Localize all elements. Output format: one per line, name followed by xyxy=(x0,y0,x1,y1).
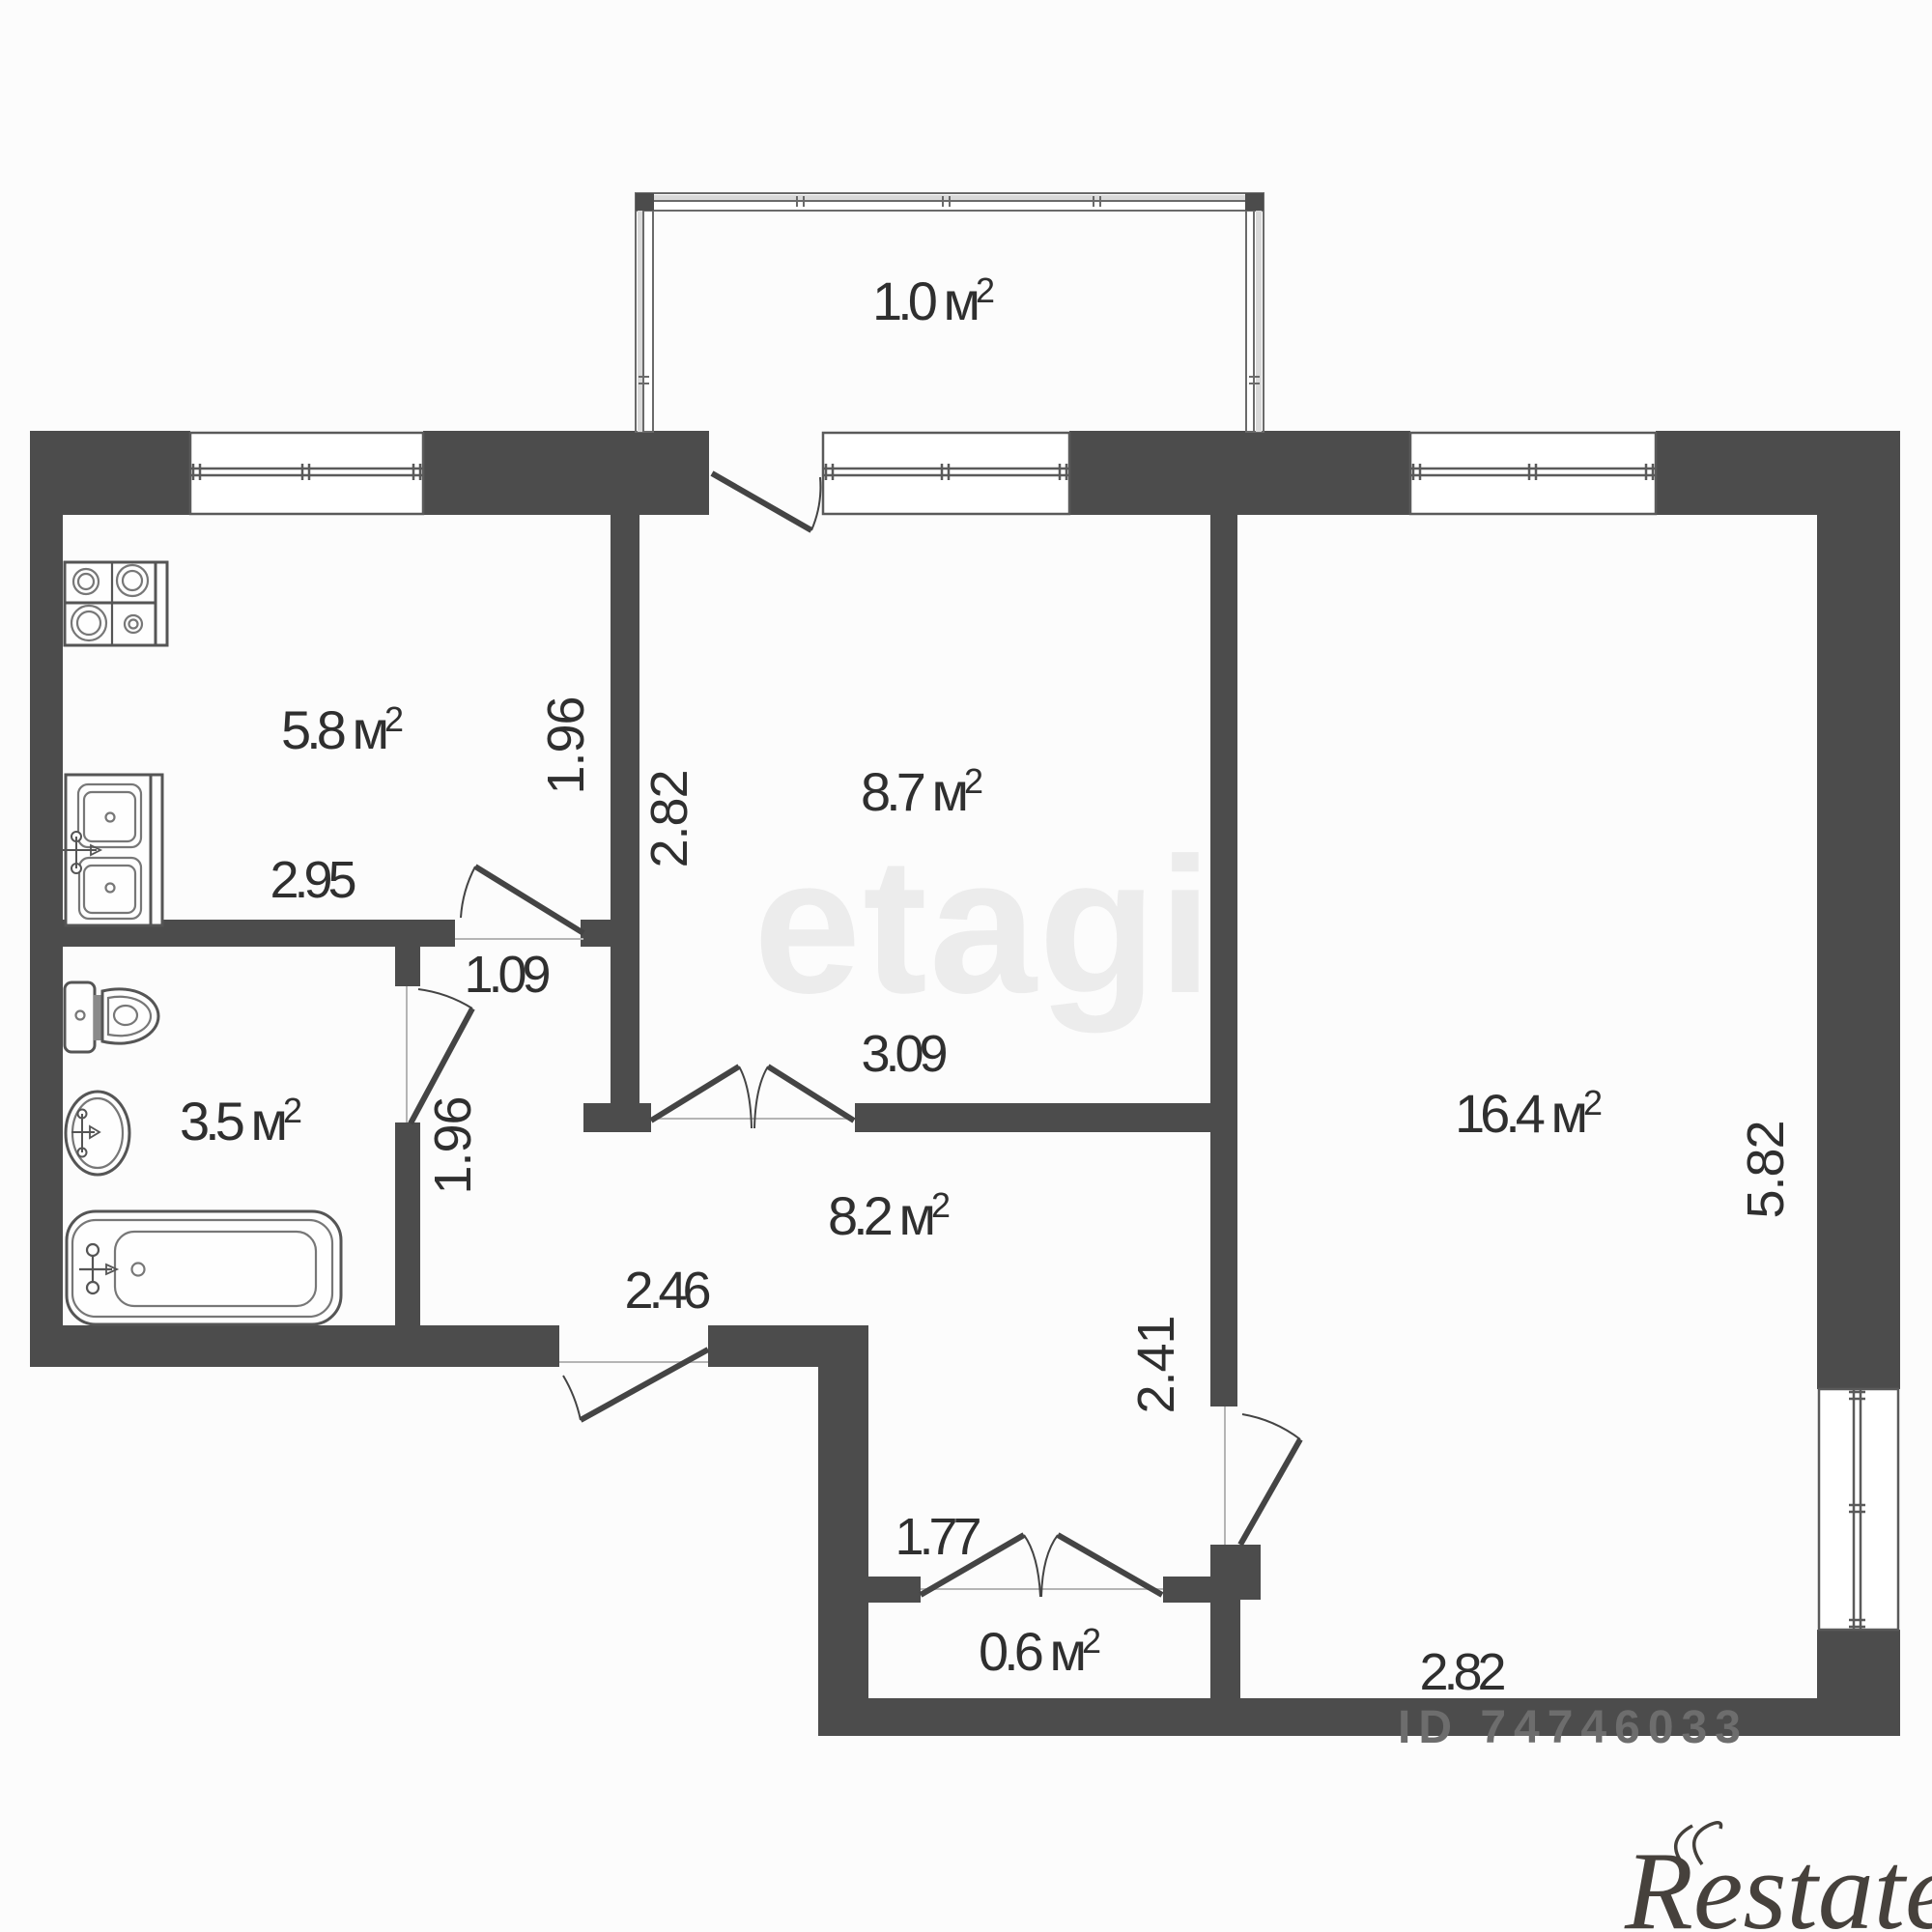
svg-text:2.41: 2.41 xyxy=(1127,1316,1185,1413)
svg-text:etagi: etagi xyxy=(753,818,1214,1034)
svg-text:Restate: Restate xyxy=(1624,1830,1932,1932)
svg-text:16.4 м2: 16.4 м2 xyxy=(1455,1083,1602,1144)
svg-text:1.77: 1.77 xyxy=(895,1508,980,1566)
svg-text:3.09: 3.09 xyxy=(861,1025,946,1083)
svg-text:2.82: 2.82 xyxy=(1419,1643,1504,1701)
svg-text:2.46: 2.46 xyxy=(624,1262,709,1320)
svg-text:5.82: 5.82 xyxy=(1737,1121,1795,1218)
svg-text:ID 74746033: ID 74746033 xyxy=(1398,1702,1748,1753)
svg-text:1.09: 1.09 xyxy=(464,946,549,1004)
svg-text:1.96: 1.96 xyxy=(537,696,595,794)
svg-text:2.95: 2.95 xyxy=(270,851,355,909)
svg-text:2.82: 2.82 xyxy=(640,770,698,867)
svg-text:1.96: 1.96 xyxy=(424,1096,482,1194)
